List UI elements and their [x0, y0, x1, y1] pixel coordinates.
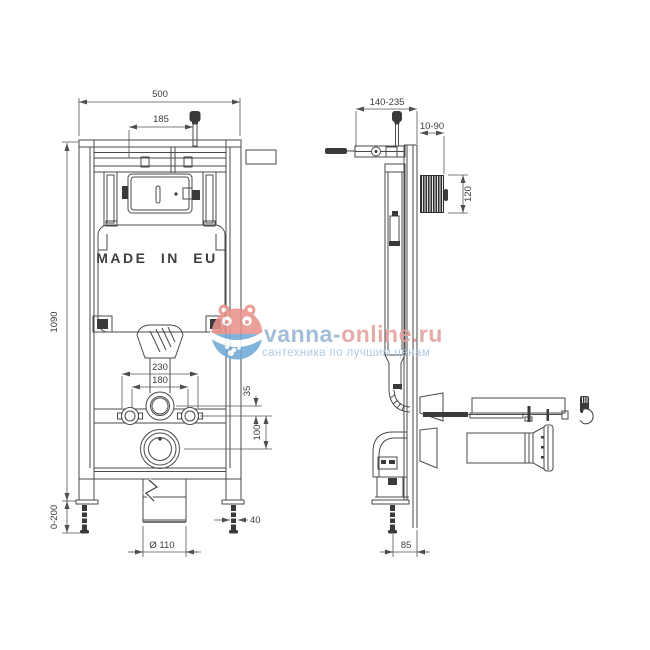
dim-label-foot: 40: [250, 515, 261, 526]
watermark-site-name: vanna-online.ru: [264, 321, 443, 347]
bowl-profile: [420, 393, 443, 468]
watermark: vanna-online.ru сантехника по лучшим цен…: [210, 305, 443, 360]
dim-label-width: 500: [152, 89, 168, 100]
made-in-eu-label: MADE IN EU: [96, 250, 217, 266]
rod-cap-clip: [580, 396, 593, 424]
dim-label-outlet-offset: 85: [401, 540, 412, 551]
side-push-rod: [392, 111, 402, 146]
flush-push-rod: [190, 111, 201, 146]
flush-connection-pipe: [467, 425, 553, 471]
dim-wall-range-10-90: 10-90: [420, 121, 444, 174]
watermark-tagline: сантехника по лучшим ценам: [262, 347, 430, 359]
dim-label-flush-offset: 35: [242, 386, 253, 397]
dim-label-fixing-inner: 180: [152, 375, 168, 386]
mounting-rod: [423, 398, 568, 422]
dim-label-fixing-outer: 230: [152, 362, 168, 373]
dim-label-depth-range: 140-235: [370, 97, 405, 108]
dim-label-button-offset: 185: [153, 114, 169, 125]
dim-depth-range-140-235: 140-235: [356, 97, 417, 147]
side-foot: [372, 500, 409, 534]
dim-label-wall-range: 10-90: [420, 121, 444, 132]
watermark-site-part2: online.ru: [341, 321, 443, 347]
dim-button-offset-185: 185: [129, 114, 193, 158]
installation-frame-drawing: MADE IN EU: [0, 0, 650, 650]
dim-drain-diameter-110: Ø 110: [128, 526, 201, 557]
dim-label-feet-adjust: 0-200: [49, 505, 60, 529]
flush-pipe-opening: [146, 392, 174, 420]
dim-label-plate-height: 120: [463, 186, 474, 202]
dim-label-height: 1090: [49, 311, 60, 332]
accessories: [423, 396, 593, 471]
wall-bracket-box: [246, 150, 276, 164]
drain-opening: [141, 430, 180, 469]
dim-plate-height-120: 120: [448, 175, 474, 213]
dim-width-500: 500: [79, 89, 240, 136]
technical-drawing-page: MADE IN EU: [0, 0, 650, 650]
watermark-site-part1: vanna-: [264, 321, 341, 347]
cistern-tank: MADE IN EU: [93, 221, 225, 332]
dim-outlet-offset-85: 85: [380, 530, 430, 557]
dim-label-drain-offset: 100: [252, 425, 263, 441]
drain-pipe: [143, 479, 186, 522]
cistern-access-box: [122, 174, 200, 213]
flush-plate-shaft: [420, 175, 448, 213]
wall-mount-arm: [325, 146, 405, 157]
dim-height-1090: 1090: [49, 142, 79, 501]
dim-foot-40: 40: [214, 515, 261, 526]
dim-label-drain-diameter: Ø 110: [149, 540, 174, 551]
dim-feet-adjust-0-200: 0-200: [49, 501, 80, 533]
